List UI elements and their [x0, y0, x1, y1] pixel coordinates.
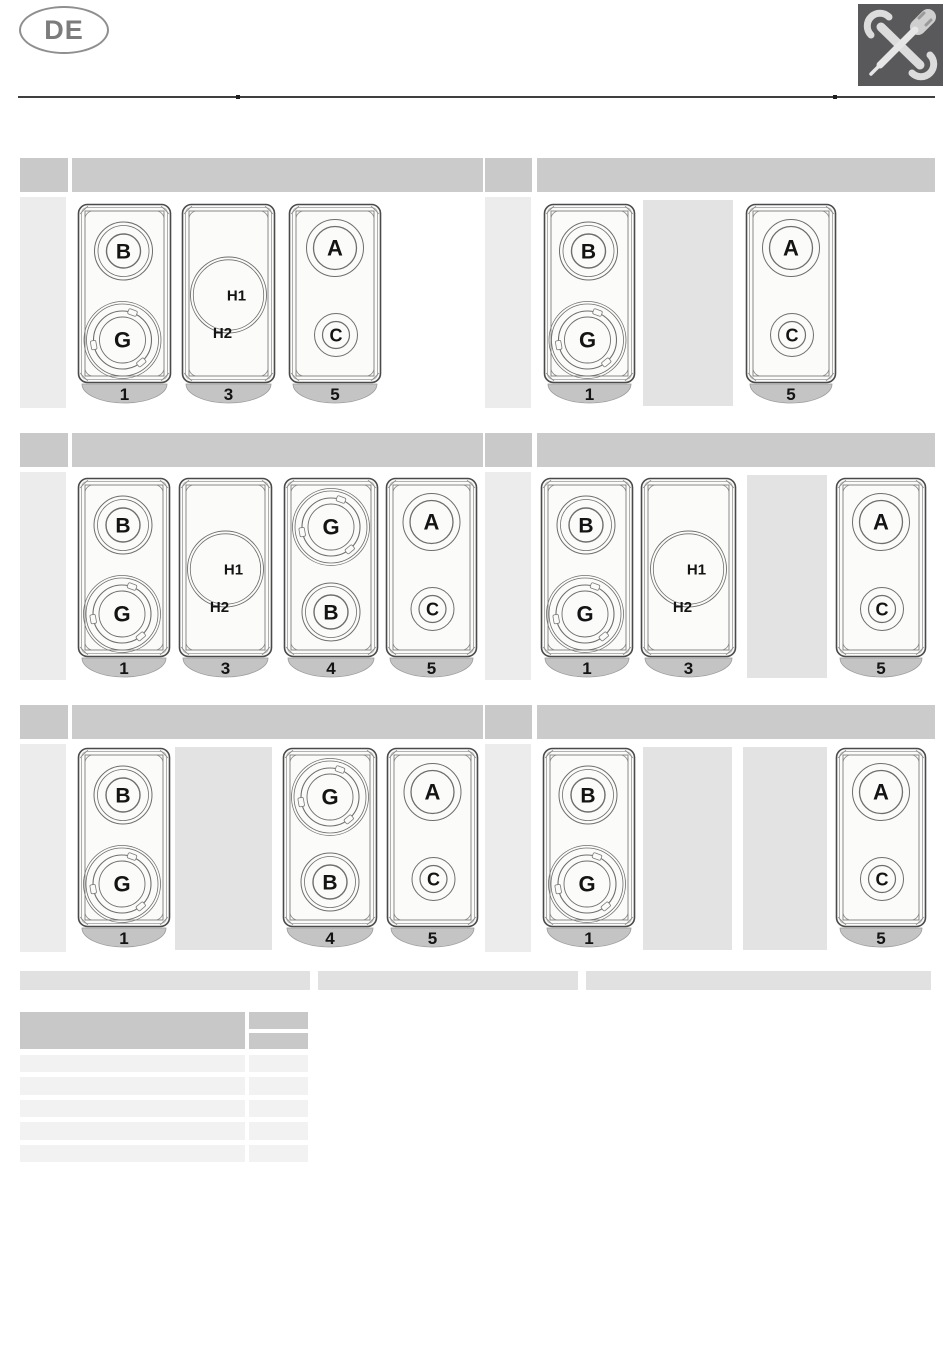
panel-number-label: 5	[876, 659, 885, 678]
section-index-box	[485, 158, 532, 192]
connector-G-label: G	[578, 872, 595, 897]
panel-number-tab: 1	[547, 384, 632, 405]
table-header-right-bottom	[249, 1033, 308, 1049]
panel-number-label: 5	[427, 659, 436, 678]
section-index-box	[20, 158, 68, 192]
rule-tick	[236, 95, 240, 99]
panel-number-label: 1	[585, 385, 594, 404]
panel-1: BG	[540, 477, 634, 658]
panel-number-label: 4	[325, 929, 335, 948]
connector-A-label: A	[327, 236, 343, 261]
empty-panel-slot	[743, 747, 827, 950]
empty-panel-slot	[175, 747, 272, 950]
header-rule	[18, 96, 935, 98]
connector-G-label: G	[322, 515, 339, 540]
panel-number-tab: 5	[292, 384, 378, 405]
table-cell	[249, 1077, 308, 1095]
panel-number-label: 5	[786, 385, 795, 404]
section-side-strip	[20, 744, 66, 952]
panel-3: H1H2	[181, 203, 276, 384]
table-row	[20, 1100, 245, 1117]
section-side-strip	[485, 744, 531, 952]
panel-1: BG	[542, 747, 636, 928]
connector-A-label: A	[783, 236, 799, 261]
connector-C-label: C	[876, 599, 889, 619]
empty-panel-slot	[747, 475, 827, 678]
panel-number-tab: 5	[749, 384, 833, 405]
panel-number-tab: 3	[644, 658, 733, 679]
section-title-bar	[72, 705, 483, 739]
panel-number-tab: 1	[81, 658, 167, 679]
panel-5: AC	[835, 477, 927, 658]
connector-H-label: H1	[224, 562, 243, 579]
connector-G-label: G	[113, 602, 130, 627]
language-badge: DE	[19, 6, 109, 54]
panel-number-label: 1	[119, 929, 128, 948]
table-cell	[249, 1122, 308, 1140]
connector-B-label: B	[323, 601, 338, 624]
panel-number-label: 1	[584, 929, 593, 948]
section-title-bar	[537, 158, 935, 192]
panel-number-label: 3	[684, 659, 693, 678]
connector-C-label: C	[876, 869, 889, 889]
panel-number-tab: 1	[81, 928, 167, 949]
table-cell	[249, 1100, 308, 1117]
panel-number-tab: 3	[182, 658, 269, 679]
connector-A-label: A	[873, 510, 889, 535]
panel-number-label: 5	[876, 929, 885, 948]
section-side-strip	[20, 472, 66, 680]
section-title-bar	[72, 158, 483, 192]
panel-1: BG	[77, 203, 172, 384]
connector-H2-label: H2	[673, 599, 692, 616]
connector-A-label: A	[873, 780, 889, 805]
connector-B-label: B	[116, 240, 131, 263]
connector-C-label: C	[426, 599, 439, 619]
wrench-screwdriver-icon	[858, 4, 943, 86]
panel-number-label: 5	[330, 385, 339, 404]
manual-page: DE BG 1	[0, 0, 950, 1370]
section-title-bar	[537, 433, 935, 467]
connector-G-label: G	[579, 328, 596, 353]
panel-number-label: 5	[428, 929, 437, 948]
connector-A-label: A	[425, 780, 441, 805]
caption-bar-3	[586, 971, 931, 990]
connector-G-label: G	[576, 602, 593, 627]
caption-bar-2	[318, 971, 578, 990]
table-row	[20, 1122, 245, 1140]
connector-B-label: B	[322, 871, 337, 894]
connector-H2-label: H2	[213, 325, 232, 342]
panel-5: AC	[385, 477, 478, 658]
connector-H-label: H1	[687, 562, 706, 579]
panel-3: H1H2	[640, 477, 737, 658]
connector-B-label: B	[580, 784, 595, 807]
connector-H-label: H1	[227, 288, 246, 305]
panel-number-tab: 4	[287, 658, 375, 679]
section-index-box	[20, 433, 68, 467]
panel-3: H1H2	[178, 477, 273, 658]
table-header-right-top	[249, 1012, 308, 1029]
connector-B-label: B	[581, 240, 596, 263]
table-cell	[249, 1145, 308, 1162]
connector-A-label: A	[424, 510, 440, 535]
panel-4: GB	[283, 477, 379, 658]
connector-C-label: C	[786, 325, 799, 345]
panel-number-label: 3	[224, 385, 233, 404]
connector-G-label: G	[113, 872, 130, 897]
panel-4: GB	[282, 747, 378, 928]
connector-G-label: G	[114, 328, 131, 353]
connector-B-label: B	[115, 514, 130, 537]
connector-B-label: B	[578, 514, 593, 537]
table-row	[20, 1077, 245, 1095]
section-side-strip	[485, 472, 531, 680]
table-row	[20, 1055, 245, 1072]
panel-number-label: 1	[120, 385, 129, 404]
connector-B-label: B	[115, 784, 130, 807]
panel-number-tab: 1	[81, 384, 168, 405]
panel-number-label: 3	[221, 659, 230, 678]
section-side-strip	[485, 197, 531, 408]
panel-number-tab: 5	[839, 658, 923, 679]
panel-number-tab: 5	[390, 928, 475, 949]
caption-bar-1	[20, 971, 310, 990]
section-title-bar	[537, 705, 935, 739]
connector-C-label: C	[330, 325, 343, 345]
panel-number-tab: 4	[286, 928, 374, 949]
panel-number-tab: 3	[185, 384, 272, 405]
connector-H2-label: H2	[210, 599, 229, 616]
table-cell	[249, 1055, 308, 1072]
panel-number-tab: 5	[839, 928, 923, 949]
panel-number-label: 1	[119, 659, 128, 678]
panel-1: BG	[77, 747, 171, 928]
panel-5: AC	[386, 747, 479, 928]
connector-G-label: G	[321, 785, 338, 810]
panel-5: AC	[288, 203, 382, 384]
panel-5: AC	[835, 747, 927, 928]
table-row	[20, 1145, 245, 1162]
section-index-box	[20, 705, 68, 739]
section-title-bar	[72, 433, 483, 467]
language-badge-label: DE	[44, 15, 84, 46]
panel-number-tab: 1	[544, 658, 630, 679]
empty-panel-slot	[643, 747, 732, 950]
section-index-box	[485, 433, 532, 467]
section-side-strip	[20, 197, 66, 408]
empty-panel-slot	[643, 200, 733, 406]
panel-1: BG	[77, 477, 171, 658]
panel-number-tab: 5	[389, 658, 474, 679]
panel-number-label: 4	[326, 659, 336, 678]
panel-5: AC	[745, 203, 837, 384]
section-index-box	[485, 705, 532, 739]
panel-number-tab: 1	[546, 928, 632, 949]
panel-number-label: 1	[582, 659, 591, 678]
connector-C-label: C	[427, 869, 440, 889]
rule-tick	[833, 95, 837, 99]
panel-1: BG	[543, 203, 636, 384]
table-header-left	[20, 1012, 245, 1049]
